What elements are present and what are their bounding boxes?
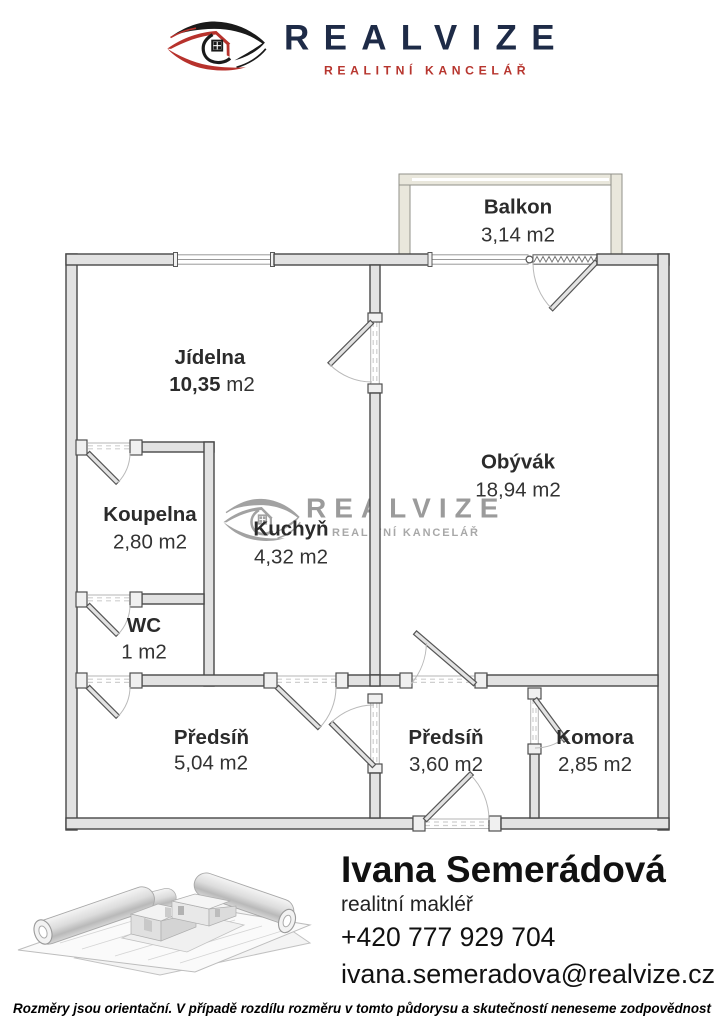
svg-text:Kuchyň: Kuchyň (253, 518, 328, 541)
svg-text:+420 777 929 704: +420 777 929 704 (341, 922, 555, 952)
svg-text:realitní makléř: realitní makléř (341, 893, 474, 916)
svg-text:Rozměry jsou orientační. V pří: Rozměry jsou orientační. V případě rozdí… (13, 1001, 711, 1016)
svg-text:Předsíň: Předsíň (408, 726, 483, 749)
svg-text:Obývák: Obývák (481, 451, 556, 474)
svg-text:REALITNÍ KANCELÁŘ: REALITNÍ KANCELÁŘ (324, 62, 530, 77)
svg-text:4,32 m2: 4,32 m2 (254, 546, 328, 569)
svg-text:1 m2: 1 m2 (121, 641, 167, 664)
svg-text:Koupelna: Koupelna (103, 503, 197, 526)
svg-text:2,85 m2: 2,85 m2 (558, 753, 632, 776)
svg-text:Balkon: Balkon (484, 196, 552, 219)
svg-text:REALVIZE: REALVIZE (284, 19, 569, 58)
svg-text:2,80 m2: 2,80 m2 (113, 531, 187, 554)
svg-text:18,94 m2: 18,94 m2 (475, 478, 560, 501)
svg-text:3,14 m2: 3,14 m2 (481, 224, 555, 247)
svg-text:REALITNÍ KANCELÁŘ: REALITNÍ KANCELÁŘ (332, 526, 480, 539)
svg-text:Komora: Komora (556, 726, 634, 749)
svg-text:Předsíň: Předsíň (174, 726, 249, 749)
svg-text:3,60 m2: 3,60 m2 (409, 753, 483, 776)
svg-text:WC: WC (127, 614, 161, 637)
svg-text:Ivana Semerádová: Ivana Semerádová (341, 849, 666, 890)
svg-text:Jídelna: Jídelna (175, 346, 246, 369)
svg-text:10,35 m2: 10,35 m2 (169, 373, 255, 396)
svg-text:ivana.semeradova@realvize.cz: ivana.semeradova@realvize.cz (341, 959, 715, 989)
svg-text:5,04 m2: 5,04 m2 (174, 752, 248, 775)
